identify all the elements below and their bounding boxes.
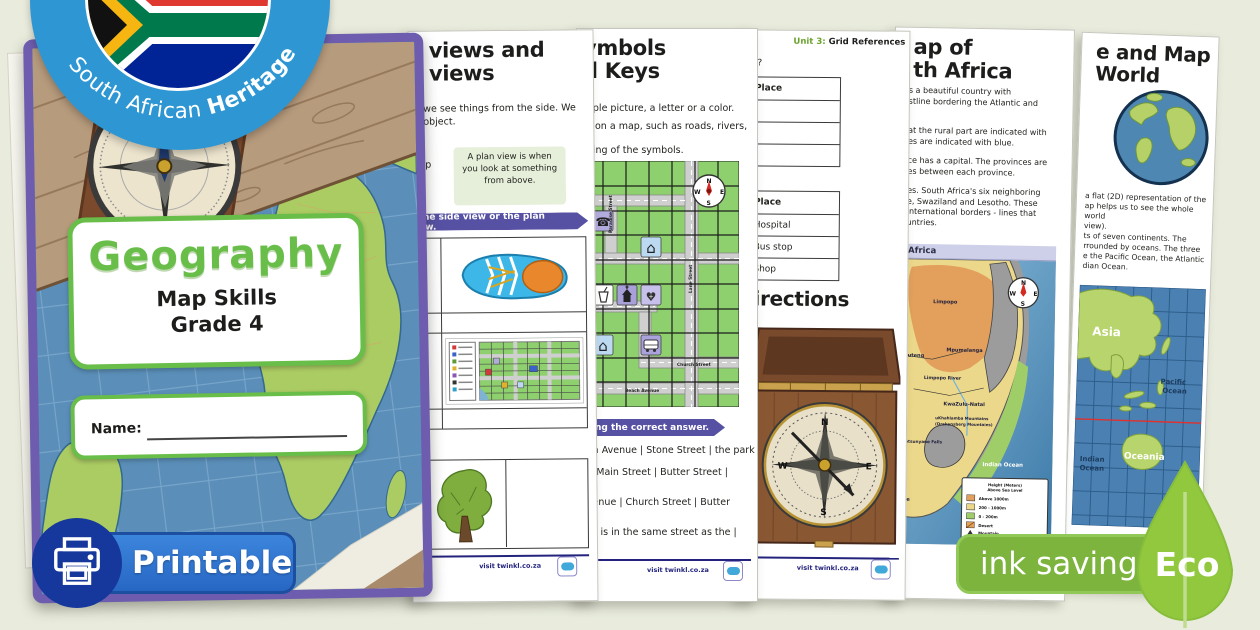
svg-text:S: S: [707, 200, 711, 207]
answer-line: Avenue | Church Street | Butter: [581, 497, 730, 508]
limpopo-label: Limpopo: [933, 299, 958, 305]
svg-text:Desert: Desert: [978, 523, 993, 528]
printable-label: Printable: [132, 532, 292, 594]
answer-line: n | Main Street | Butter Street |: [581, 467, 728, 478]
svg-text:0 - 200m: 0 - 200m: [978, 514, 997, 519]
table-row: Shop: [746, 257, 838, 280]
twinkl-cloud-icon: [874, 565, 887, 573]
svg-text:S: S: [820, 508, 827, 518]
kwazulu-label: KwaZulu-Natal: [943, 401, 985, 408]
svg-text:E: E: [720, 189, 724, 196]
symbols-body-1: imple picture, a letter or a color.: [581, 103, 734, 114]
worksheet-views: views and views we see things from the s…: [408, 29, 599, 603]
twinkl-stamp: [723, 561, 743, 581]
table-row: [747, 143, 839, 166]
footer-url: visit twinkl.co.za: [797, 564, 859, 573]
pacific-label-1: Pacific: [1160, 378, 1186, 387]
twinkl-cloud-icon: [561, 562, 574, 570]
svg-text:Above 1000m: Above 1000m: [979, 496, 1009, 502]
views-title-line2: views: [429, 61, 545, 85]
views-title-line1: views and: [429, 39, 545, 63]
globe-icon: [1109, 86, 1212, 189]
world-title: e and Map World: [1095, 41, 1211, 88]
svg-text:200 - 1000m: 200 - 1000m: [979, 505, 1006, 510]
views-table: [420, 236, 588, 429]
symbols-title: ymbols d Keys: [583, 37, 666, 82]
table-row: Bus stop: [747, 235, 839, 258]
sa-paragraph-2: at the rural part are indicated with es …: [908, 126, 1047, 150]
plan-view-tip: A plan view is when you look at somethin…: [454, 146, 567, 205]
svg-text:W: W: [1009, 291, 1016, 298]
sa-paragraph-4: es. South Africa's six neighboring e, Sw…: [906, 186, 1040, 231]
twinkl-stamp: [557, 556, 577, 576]
answer-line: inic is in the same street as the |: [581, 527, 737, 538]
symbols-title-line2: d Keys: [583, 60, 666, 83]
river-label: Limpopo River: [924, 375, 962, 382]
sa-title: ap of th Africa: [913, 36, 1013, 83]
unit-label: Unit 3:: [793, 37, 825, 47]
svg-text:W: W: [694, 189, 701, 196]
symbols-title-line1: ymbols: [583, 37, 666, 60]
cover-title-panel: Geography Map Skills Grade 4: [67, 213, 366, 370]
lane-street-label: Lane Street: [688, 265, 694, 293]
paradise-street-label: Paradise Street: [608, 195, 614, 233]
worksheet-grid-references: Unit 3: Grid References es? Place Place …: [738, 29, 911, 600]
shoe-plan-view-image: [452, 244, 575, 305]
table-header: Place: [747, 191, 839, 214]
printer-icon: [50, 536, 104, 590]
cover-name-panel: Name:: [70, 391, 367, 460]
beach-avenue-label: Beach Avenue: [625, 388, 659, 394]
church-street-label: Church Street: [677, 362, 711, 368]
name-label: Name:: [91, 421, 142, 438]
eco-label: Eco: [1146, 545, 1228, 584]
street-map: ☎ ⌂ ♥ + ⌂ N E S W Paradise Street Lane S…: [581, 161, 739, 407]
mountains-label-1: uKhahlamba Mountains: [935, 415, 989, 421]
views-banner: s the side view or the plan view.: [410, 212, 588, 231]
world-paragraph-2: ts of seven continents. The rrounded by …: [1082, 231, 1205, 275]
name-line[interactable]: [147, 435, 347, 440]
printable-icon-circle: [32, 518, 122, 608]
footer-url: visit twinkl.co.za: [479, 562, 541, 571]
sa-paragraph-1: s a beautiful country with stline border…: [909, 86, 1039, 109]
svg-text:E: E: [866, 462, 872, 472]
twinkl-cloud-icon: [727, 567, 740, 575]
south-africa-map: N E S W Limpopo Gauteng Mpumalanga Limpo…: [889, 258, 1056, 546]
worksheet-south-africa: ap of th Africa s a beautiful country wi…: [885, 26, 1075, 601]
table-row: [748, 99, 840, 122]
sa-title-line1: ap of: [913, 36, 1013, 60]
svg-text:N: N: [821, 418, 829, 428]
grid-table-2: Place Hospital Bus stop Shop: [745, 190, 840, 281]
worksheet-symbols-keys: ymbols d Keys imple picture, a letter or…: [576, 28, 758, 602]
tree-table: [422, 458, 589, 549]
svg-text:S: S: [1021, 301, 1025, 308]
svg-text:W: W: [778, 462, 788, 472]
sa-title-line2: th Africa: [913, 58, 1013, 82]
eco-leaf-icon: [1128, 458, 1242, 630]
hospital-cross-icon: +: [648, 294, 653, 301]
views-body-2: object.: [423, 116, 455, 128]
symbols-body-3: aning of the symbols.: [581, 145, 684, 156]
grid-table-1: Place: [746, 76, 841, 167]
unit-title: Grid References: [826, 37, 906, 48]
footer-url: visit twinkl.co.za: [647, 566, 709, 574]
views-body-1: we see things from the side. We: [423, 102, 576, 115]
tree-side-view-image: [432, 464, 497, 545]
svg-text:Above Sea Level: Above Sea Level: [987, 487, 1022, 493]
heritage-badge: South African Heritage: [30, 0, 330, 150]
indian-ocean-label: Indian Ocean: [982, 462, 1023, 469]
views-title: views and views: [429, 39, 545, 85]
cover-subtitle: Map Skills: [73, 284, 359, 313]
svg-text:South African Heritage: South African Heritage: [63, 42, 301, 124]
house-icon-2: ⌂: [598, 337, 608, 355]
table-row: [747, 121, 839, 144]
symbols-banner: ling the correct answer.: [577, 419, 725, 436]
house-icon: ⌂: [646, 239, 656, 257]
map-with-key-image: [445, 337, 584, 404]
twinkl-stamp: [871, 559, 891, 579]
table-header: Place: [748, 77, 840, 100]
asia-label: Asia: [1092, 324, 1121, 339]
heritage-arc-text: South African Heritage: [30, 0, 330, 150]
pacific-label-2: Ocean: [1162, 387, 1187, 396]
world-paragraph-1: a flat (2D) representation of the ap hel…: [1084, 191, 1213, 236]
svg-text:E: E: [1033, 291, 1037, 298]
compass-box-illustration: N S E W: [749, 322, 901, 551]
unit-header: Unit 3: Grid References: [769, 37, 905, 48]
answer-line: een Avenue | Stone Street | the park |.: [581, 445, 757, 468]
sa-paragraph-3: ce has a capital. The provinces are es b…: [907, 156, 1047, 180]
ink-saving-label: ink saving: [980, 534, 1138, 594]
cover-grade: Grade 4: [74, 310, 360, 339]
cover-title: Geography: [73, 230, 360, 281]
mountains-label-2: (Drakensberg Mountains): [935, 421, 993, 427]
indian-label-2: Ocean: [1079, 464, 1104, 473]
indian-label-1: Indian: [1080, 455, 1105, 464]
table-row: Hospital: [747, 213, 839, 236]
mpumalanga-label: Mpumalanga: [946, 347, 982, 354]
symbols-body-2: gs on a map, such as roads, rivers,: [581, 121, 747, 132]
